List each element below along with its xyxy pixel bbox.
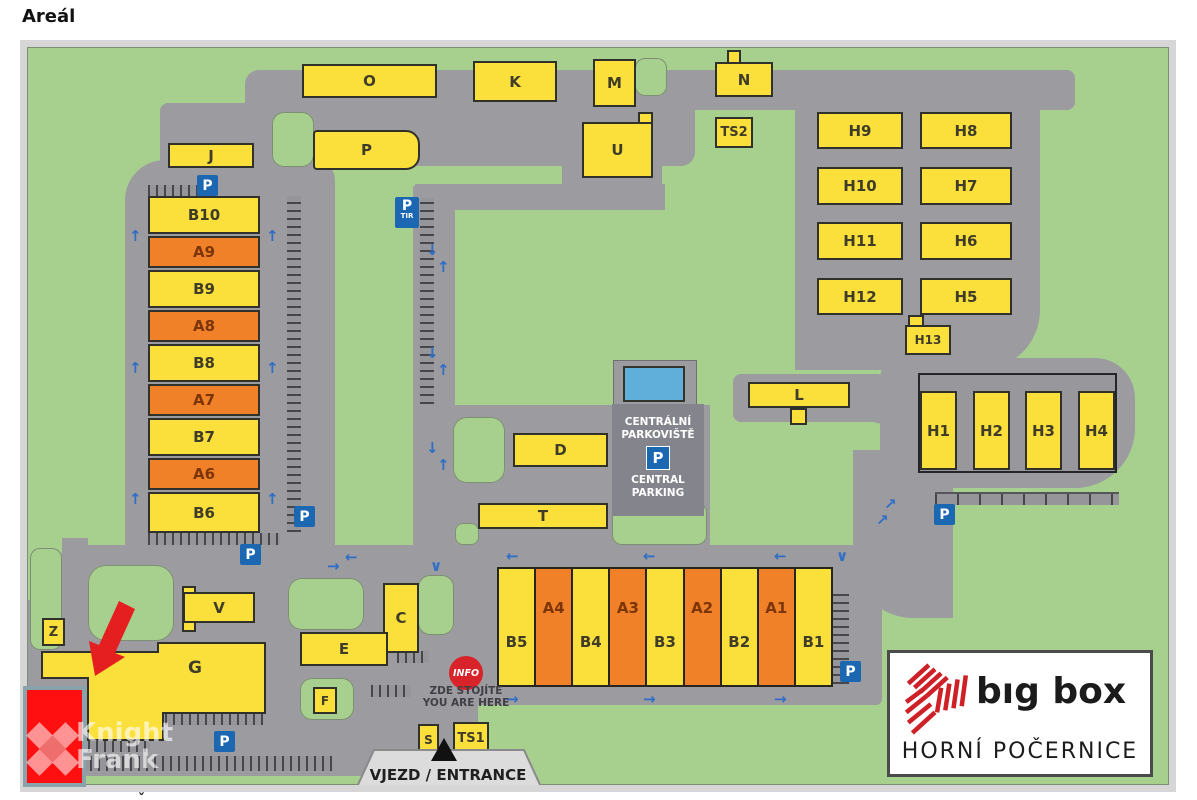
direction-arrow-icon: ↓ (426, 441, 439, 456)
building-label: A4 (536, 599, 571, 617)
direction-arrow-icon: ∨ (430, 559, 442, 574)
parking-sign-icon: P (294, 506, 315, 527)
building-m: M (593, 59, 636, 107)
parking-hatch (148, 185, 200, 196)
parking-hatch (165, 712, 263, 725)
building-t: T (478, 503, 608, 529)
watermark-text: KnightFrank (76, 720, 173, 774)
watermark-line1: Knight (76, 720, 173, 747)
page-title: Areál (22, 6, 75, 27)
parking-hatch (287, 196, 301, 532)
direction-arrow-icon: ↑ (266, 361, 279, 376)
direction-arrow-icon: ↓ (426, 243, 439, 258)
building-a3: A3 (610, 569, 647, 685)
pool (623, 366, 685, 402)
entrance-label: VJEZD / ENTRANCE (348, 766, 548, 786)
building-a1: A1 (759, 569, 796, 685)
central-parking-en-1: CENTRAL (612, 474, 704, 487)
direction-arrow-icon: ↑ (437, 458, 450, 473)
building-h1: H1 (920, 391, 957, 470)
building-d: D (513, 433, 608, 467)
building-o: O (302, 64, 437, 98)
building-h6: H6 (920, 222, 1012, 260)
parking-hatch (420, 198, 434, 404)
building-e: E (300, 632, 388, 666)
building-h9: H9 (817, 112, 903, 149)
road-segment (415, 184, 665, 210)
direction-arrow-icon: ← (345, 550, 358, 565)
building-label: B5 (499, 633, 534, 651)
green-island (88, 565, 174, 641)
building-v: V (183, 592, 255, 623)
page: Areál CENTRÁLNÍPARKOVIŠTĚPCENTRALPARKING… (0, 0, 1197, 800)
green-island (635, 58, 667, 96)
building-label: A2 (685, 599, 720, 617)
direction-arrow-icon: ↑ (129, 229, 142, 244)
direction-arrow-icon: ↑ (437, 260, 450, 275)
bigbox-logo: bıg boxHORNÍ POČERNICE (887, 650, 1153, 777)
building-label: B4 (573, 633, 608, 651)
central-parking-block: CENTRÁLNÍPARKOVIŠTĚPCENTRALPARKING (612, 404, 704, 516)
building-h5: H5 (920, 278, 1012, 315)
direction-arrow-icon: → (327, 559, 340, 574)
watermark-knight-frank: KnightFrank (24, 712, 174, 792)
building-h8: H8 (920, 112, 1012, 149)
you-are-here-en: YOU ARE HERE (406, 697, 526, 709)
building-row-b5-b1: B5A4B4A3B3A2B2A1B1 (497, 567, 833, 687)
building-g-label: G (180, 662, 210, 682)
site-map: CENTRÁLNÍPARKOVIŠTĚPCENTRALPARKINGJOPKMN… (20, 40, 1176, 792)
building-a2: A2 (685, 569, 722, 685)
building-j: J (168, 143, 254, 168)
green-island (418, 575, 454, 635)
bigbox-location-text: HORNÍ POČERNICE (890, 739, 1150, 764)
building-b10: B10 (148, 196, 260, 234)
direction-arrow-icon: ← (774, 549, 787, 564)
parking-icon: P (646, 446, 670, 470)
parking-sign-icon: P (934, 504, 955, 525)
direction-arrow-icon: ↗ (876, 513, 889, 528)
direction-arrow-icon: ↑ (266, 492, 279, 507)
building-b9: B9 (148, 270, 260, 308)
building-h3: H3 (1025, 391, 1062, 470)
direction-arrow-icon: ← (506, 549, 519, 564)
central-parking-cz-1: CENTRÁLNÍ (612, 416, 704, 429)
parking-hatch (935, 492, 1119, 505)
green-island (453, 417, 505, 483)
building-ts1: TS1 (453, 722, 489, 754)
green-island (272, 112, 314, 167)
building-h11: H11 (817, 222, 903, 260)
central-parking-en-2: PARKING (612, 487, 704, 500)
building-b1: B1 (796, 569, 831, 685)
building-a8: A8 (148, 310, 260, 342)
cutoff-text-mark: ˇ (138, 792, 145, 800)
parking-sign-icon: P (197, 175, 218, 196)
direction-arrow-icon: ↑ (437, 363, 450, 378)
building-label: A1 (759, 599, 794, 617)
building-b8: B8 (148, 344, 260, 382)
direction-arrow-icon: ↑ (129, 361, 142, 376)
building-c: C (383, 583, 419, 653)
building-s: S (418, 724, 439, 755)
watermark-line2: Frank (76, 747, 173, 774)
building-b5: B5 (499, 569, 536, 685)
building-h13: H13 (905, 325, 951, 355)
building-h12: H12 (817, 278, 903, 315)
building-b7: B7 (148, 418, 260, 456)
direction-arrow-icon: ← (643, 549, 656, 564)
parking-hatch (148, 533, 280, 545)
central-parking-cz-2: PARKOVIŠTĚ (612, 429, 704, 442)
direction-arrow-icon: ↗ (884, 497, 897, 512)
bigbox-brand-text: bıg box (976, 671, 1126, 712)
building-label: B3 (647, 633, 682, 651)
building-b2: B2 (722, 569, 759, 685)
parking-sign-tir: TIR (395, 213, 419, 220)
direction-arrow-icon: ↑ (129, 492, 142, 507)
parking-sign-icon: P (840, 661, 861, 682)
you-are-here-label: ZDE STOJÍTEYOU ARE HERE (406, 685, 526, 711)
building-h7: H7 (920, 167, 1012, 205)
green-island (288, 578, 364, 630)
direction-arrow-icon: → (643, 692, 656, 707)
parking-sign-icon: P (214, 731, 235, 752)
building-b3: B3 (647, 569, 684, 685)
bigbox-cube-icon (900, 661, 970, 737)
building-b6: B6 (148, 492, 260, 533)
building-z: Z (42, 618, 65, 646)
building-l: L (748, 382, 850, 408)
building-a4: A4 (536, 569, 573, 685)
building-h2: H2 (973, 391, 1010, 470)
building-a7: A7 (148, 384, 260, 416)
building-f: F (313, 687, 337, 714)
building-b4: B4 (573, 569, 610, 685)
green-island (455, 523, 479, 545)
building-label: B1 (796, 633, 831, 651)
direction-arrow-icon: ↑ (266, 229, 279, 244)
building-h4: H4 (1078, 391, 1115, 470)
building-label: A3 (610, 599, 645, 617)
building-n: N (715, 62, 773, 97)
you-are-here-cz: ZDE STOJÍTE (406, 685, 526, 697)
direction-arrow-icon: → (774, 692, 787, 707)
building-ts2: TS2 (715, 117, 753, 148)
road-segment (62, 538, 88, 664)
building-u: U (582, 122, 653, 178)
direction-arrow-icon: ∨ (836, 549, 848, 564)
building-h10: H10 (817, 167, 903, 205)
building-label: B2 (722, 633, 757, 651)
parking-sign-p: P (395, 199, 419, 213)
direction-arrow-icon: ↓ (426, 346, 439, 361)
parking-sign-icon: P (240, 544, 261, 565)
building-a6: A6 (148, 458, 260, 490)
truck-parking-sign-icon: PTIR (395, 197, 419, 228)
building-a9: A9 (148, 236, 260, 268)
building-k: K (473, 61, 557, 102)
building-p: P (313, 130, 420, 170)
building-part (790, 408, 807, 425)
parking-hatch (371, 685, 411, 697)
